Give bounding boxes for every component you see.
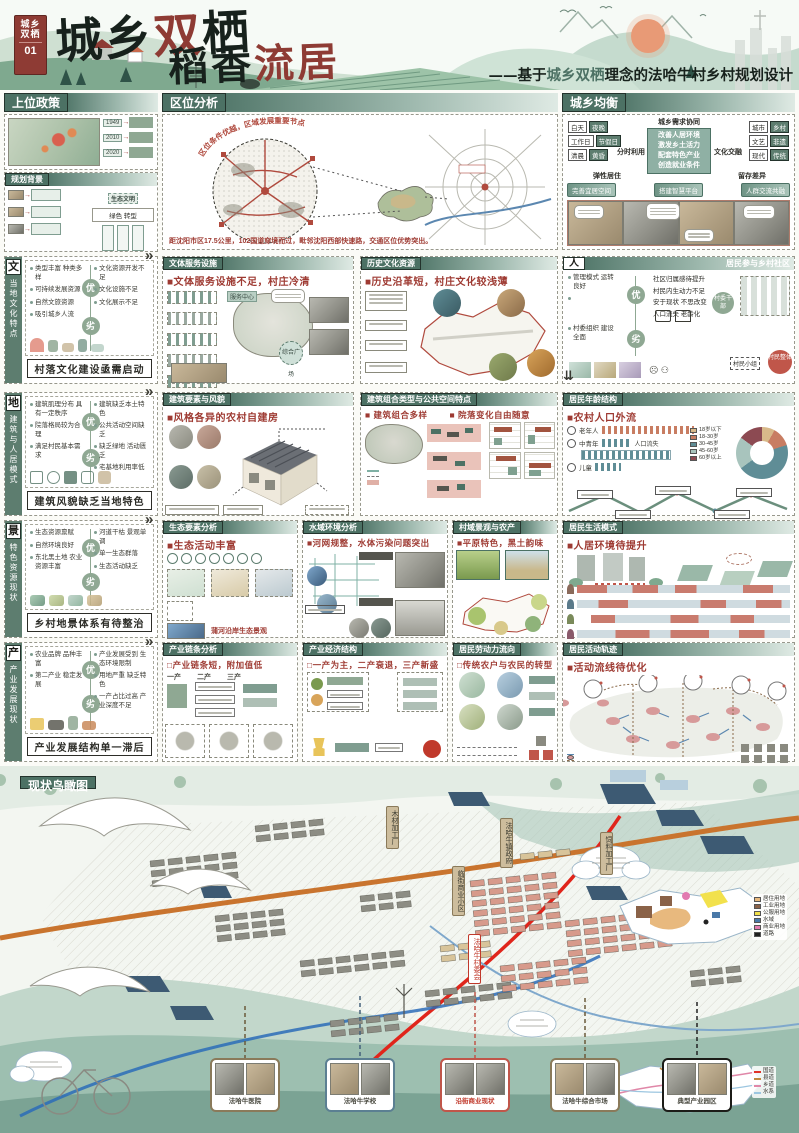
policy-year-1: 1949 bbox=[103, 119, 122, 127]
chain-label-2: 二产 bbox=[197, 672, 211, 682]
aerial-tag-1: 木材加工厂 bbox=[386, 806, 399, 849]
arch-house-drawing bbox=[229, 425, 329, 513]
industry-icons bbox=[30, 714, 149, 730]
industry-cons: 产业发展受到 生态环境限制用地严重 缺乏特色一产占比过高 产业深度不足 bbox=[94, 651, 150, 714]
eco-title: 生态要素分析 bbox=[163, 521, 223, 534]
badge-line2: 双栖 bbox=[15, 29, 46, 39]
facility-note2: 综合广场 bbox=[279, 341, 303, 365]
chain-title: 产业链条分析 bbox=[163, 643, 223, 656]
chain-label-1: 一产 bbox=[167, 672, 181, 682]
poster-header: 城乡 双栖 01 城乡双栖 稻香流居 ——基于城乡双栖理念的法哈牛村乡村规划设计 bbox=[0, 0, 799, 90]
track-headline: ■活动流线待优化 bbox=[563, 656, 794, 675]
track-title: 居民活动轨迹 bbox=[563, 643, 623, 656]
policy-title: 上位政策 bbox=[4, 93, 68, 112]
panel-people: 人 居民参与乡村社区 管理模式 运转良好村委组织 建设全面 优 劣 社区归属感待… bbox=[562, 256, 795, 384]
panel-policy: 上位政策 1949→ 2010→ 2020→ bbox=[4, 93, 158, 170]
panel-track: 居民活动轨迹 ■活动流线待优化 bbox=[562, 642, 795, 762]
economy-headline: □一产为主，二产衰退，三产新盛 bbox=[303, 656, 447, 672]
eco-headline: ■生态活动丰富 bbox=[163, 534, 297, 553]
panel-economy: 产业经济结构 □一产为主，二产衰退，三产新盛 bbox=[302, 642, 448, 762]
location-maps: 区位条件优越，区域发展重要节点 bbox=[163, 115, 557, 249]
facility-headline: ■文体服务设施不足，村庄冷清 bbox=[163, 270, 353, 289]
tab-char-culture: 文 bbox=[6, 259, 21, 275]
arch-combo-title: 建筑组合类型与公共空间特点 bbox=[361, 393, 477, 406]
life-schedule bbox=[567, 584, 790, 639]
panel-life: 居民生活模式 ■人居环境待提升 bbox=[562, 520, 795, 638]
eco-note: 绿色 转型 bbox=[92, 208, 154, 222]
age-title: 居民年龄结构 bbox=[563, 393, 623, 406]
policy-year-2: 2010 bbox=[103, 134, 122, 142]
land-pros: 生态资源禀赋自然环境良好东北黑土地 农业资源丰富 bbox=[30, 529, 86, 575]
eco-label: 生态文明 bbox=[108, 193, 138, 204]
main-title-line2: 稻香流居 bbox=[167, 29, 341, 93]
panel-village-view: 村域景观与农产 ■平原特色，黑土韵味 bbox=[452, 520, 558, 638]
panel-background: 规划背景 → → → 生态文明 绿色 转型 bbox=[4, 172, 158, 252]
panel-water: 水域环境分析 ■河网规整，水体污染问题突出 bbox=[302, 520, 448, 638]
industry-banner: 产业发展结构单一滞后 bbox=[27, 737, 152, 756]
history-title: 历史文化资源 bbox=[361, 257, 421, 270]
age-group-3: 儿童 bbox=[579, 462, 592, 472]
facility-note1: 服务中心 bbox=[227, 291, 257, 302]
policy-year-3: 2020 bbox=[103, 149, 122, 157]
aerial-title: 现状鸟瞰图 bbox=[20, 776, 96, 789]
balance-title: 城乡均衡 bbox=[562, 93, 626, 112]
balance-right-pairs: 城市乡村 文艺非遗 现代传统 bbox=[749, 121, 789, 163]
panel-location: 区位分析 区位条件优越，区域发展重要节点 bbox=[162, 93, 558, 250]
arch-pros: 建筑肌理分布 具有一定秩序院落格局较为合理满足村民基本需求 bbox=[30, 401, 86, 464]
people-node-3: 村民整体 bbox=[768, 350, 792, 374]
panel-arch-combo: 建筑组合类型与公共空间特点 ■ 建筑组合多样 ■ 院落变化自由随意 bbox=[360, 392, 558, 516]
age-group-2: 中青年 bbox=[579, 438, 599, 448]
poster: 城乡 双栖 01 城乡双栖 稻香流居 ——基于城乡双栖理念的法哈牛村乡村规划设计… bbox=[0, 0, 799, 1133]
panel-arch-style: 建筑要素与风貌 ■风格各异的农村自建房 bbox=[162, 392, 354, 516]
arch-combo-headline2: ■ 院落变化自由随意 bbox=[446, 406, 535, 422]
culture-icons bbox=[30, 336, 149, 352]
panel-history: 历史文化资源 ■历史沿革短，村庄文化较浅薄 bbox=[360, 256, 558, 384]
arrow-more-2: » bbox=[145, 383, 150, 400]
photo-card-2: 法哈牛学校 bbox=[325, 1058, 395, 1112]
panel-chain: 产业链条分析 □产业链条短，附加值低 一产 二产 三产 bbox=[162, 642, 298, 762]
arch-style-title: 建筑要素与风貌 bbox=[163, 393, 231, 406]
panel-land-tab: 景特色资源现状 生态资源禀赋自然环境良好东北黑土地 农业资源丰富 优劣 河道干枯… bbox=[4, 520, 158, 638]
land-icons bbox=[30, 590, 149, 606]
combo-map bbox=[365, 424, 423, 464]
location-title: 区位分析 bbox=[162, 93, 226, 112]
age-donut-legend: 18岁以下 18-30岁 30-45岁 45-60岁 60岁以上 bbox=[690, 427, 730, 462]
arch-icons bbox=[30, 468, 149, 484]
panel-industry-tab: 产产业发展现状 农业品牌 品种丰富第二产业 稳定发展 优劣 产业发展受到 生态环… bbox=[4, 642, 158, 762]
land-banner: 乡村地景体系有待整治 bbox=[27, 613, 152, 632]
chain-headline: □产业链条短，附加值低 bbox=[163, 656, 297, 672]
village-view-headline: ■平原特色，黑土韵味 bbox=[453, 534, 557, 550]
badge-line1: 城乡 bbox=[15, 19, 46, 29]
chain-label-3: 三产 bbox=[227, 672, 241, 682]
people-pros: 管理模式 运转良好村委组织 建设全面 bbox=[568, 274, 620, 346]
balance-center-box: 改善人居环境激发乡土活力配套特色产业创造就业条件 bbox=[647, 128, 711, 174]
balance-left-label: 分时利用 bbox=[617, 147, 645, 157]
age-headline: ■农村人口外流 bbox=[563, 406, 794, 425]
water-headline: ■河网规整，水体污染问题突出 bbox=[303, 534, 447, 550]
policy-map bbox=[8, 118, 100, 166]
arch-combo-headline1: ■ 建筑组合多样 bbox=[361, 406, 432, 422]
people-char: 人 bbox=[563, 257, 585, 270]
people-node-2: 村民小组 bbox=[730, 357, 760, 370]
culture-banner: 村落文化建设亟需启动 bbox=[27, 359, 152, 378]
badge-number: 01 bbox=[19, 42, 42, 57]
track-legend bbox=[567, 754, 576, 761]
panel-balance: 城乡均衡 白天夜晚 工作日节假日 清晨黄昏 城市乡村 文艺非遗 现代传统 城乡需… bbox=[562, 93, 795, 250]
arch-banner: 建筑风貌缺乏当地特色 bbox=[27, 491, 152, 510]
arrow-down: ⇊ bbox=[563, 368, 574, 384]
background-title: 规划背景 bbox=[5, 173, 49, 186]
arrow-more-1: » bbox=[145, 247, 150, 264]
balance-right-sub: 留存差异 bbox=[738, 171, 766, 181]
tab-char-land: 景 bbox=[6, 523, 21, 539]
aerial-view: 现状鸟瞰图 木材加工厂 法哈牛镇政府 饲料加工厂 临街商业小区 法哈牛村委会 居… bbox=[0, 766, 799, 1133]
photo-card-5: 典型产业园区 bbox=[662, 1058, 732, 1112]
panel-facility: 文体服务设施 ■文体服务设施不足，村庄冷清 服务中心 综合广场 bbox=[162, 256, 354, 384]
water-title: 水域环境分析 bbox=[303, 521, 363, 534]
panel-culture-tab: 文当地文化特点 类型丰富 种类多样可持续发展资源自然文旅资源吸引城乡人流 优劣 … bbox=[4, 256, 158, 384]
panel-arch-tab: 地建筑与人居模式 建筑肌理分布 具有一定秩序院落格局较为合理满足村民基本需求 优… bbox=[4, 392, 158, 516]
land-cons: 河道干枯 景观单调单一生态群落生态活动缺乏 bbox=[94, 529, 150, 575]
arrow-more-3: » bbox=[145, 511, 150, 528]
tab-char-arch: 地 bbox=[6, 395, 21, 411]
balance-right-label: 文化交融 bbox=[714, 147, 742, 157]
facility-title: 文体服务设施 bbox=[163, 257, 223, 270]
eco-caption: 蒲河沿岸生态景观 bbox=[211, 626, 267, 636]
tab-label-land: 特色资源现状 bbox=[8, 543, 19, 603]
photo-card-4: 法哈牛综合市场 bbox=[550, 1058, 620, 1112]
life-headline: ■人居环境待提升 bbox=[563, 534, 794, 553]
village-outline-map bbox=[455, 586, 555, 638]
age-group-1: 老年人 bbox=[579, 425, 599, 435]
history-headline: ■历史沿革短，村庄文化较浅薄 bbox=[361, 270, 557, 289]
life-title: 居民生活模式 bbox=[563, 521, 623, 534]
landuse-legend: 居住用地 工业用地 公服用地 水域 商业用地 道路 bbox=[752, 894, 787, 940]
balance-photo-strip bbox=[567, 200, 790, 246]
arrow-more-4: » bbox=[145, 633, 150, 650]
village-view-title: 村域景观与农产 bbox=[453, 521, 521, 534]
poster-subtitle: ——基于城乡双栖理念的法哈牛村乡村规划设计 bbox=[489, 64, 794, 85]
balance-pills: 完善宜居空间搭建智慧平台人群交流共融 bbox=[567, 183, 790, 197]
age-loss-label: 人口流失 bbox=[635, 439, 659, 448]
photo-card-3: 沿街商业现状 bbox=[440, 1058, 510, 1112]
balance-center-title: 城乡需求协同 bbox=[647, 117, 711, 127]
tab-char-industry: 产 bbox=[6, 645, 21, 661]
industry-pros: 农业品牌 品种丰富第二产业 稳定发展 bbox=[30, 651, 86, 693]
panel-age: 居民年龄结构 ■农村人口外流 老年人 中青年人口流失 儿童 18岁以下 18-3… bbox=[562, 392, 795, 516]
series-badge: 城乡 双栖 01 bbox=[14, 15, 47, 75]
balance-left-sub: 弹性居住 bbox=[593, 171, 621, 181]
aerial-tag-4: 临街商业小区 bbox=[452, 866, 465, 916]
panel-eco: 生态要素分析 ■生态活动丰富 蒲河沿岸生态景观 bbox=[162, 520, 298, 638]
tab-label-culture: 当地文化特点 bbox=[8, 279, 19, 339]
photo-card-1: 法哈牛医院 bbox=[210, 1058, 280, 1112]
culture-cons: 文化资源开发不足文化设施不足文化展示不足 bbox=[94, 265, 150, 311]
aerial-tag-5: 法哈牛村委会 bbox=[468, 934, 481, 984]
tab-label-arch: 建筑与人居模式 bbox=[8, 415, 19, 485]
culture-pros: 类型丰富 种类多样可持续发展资源自然文旅资源吸引城乡人流 bbox=[30, 265, 86, 324]
people-title: 居民参与乡村社区 bbox=[726, 258, 790, 269]
balance-left-pairs: 白天夜晚 工作日节假日 清晨黄昏 bbox=[568, 121, 621, 163]
people-node-1: 村委干部 bbox=[712, 292, 734, 314]
tab-label-industry: 产业发展现状 bbox=[8, 665, 19, 725]
aerial-tag-2: 法哈牛镇政府 bbox=[500, 818, 513, 868]
panel-labor: 居民劳动力流向 □传统农户与农民的转型 bbox=[452, 642, 558, 762]
road-legend: 国道 县道 乡道 水系 bbox=[752, 1066, 776, 1098]
aerial-tag-3: 饲料加工厂 bbox=[600, 832, 613, 875]
location-caption: 距沈阳市区17.5公里，102国道穿境而过，毗邻沈阳西部快速路，交通区位优势突出… bbox=[169, 236, 432, 246]
arch-cons: 建筑缺乏本土特色公共活动空间缺乏缺乏绿地 活动匮乏宅基地利用率低 bbox=[94, 401, 150, 477]
labor-headline: □传统农户与农民的转型 bbox=[453, 656, 557, 672]
economy-title: 产业经济结构 bbox=[303, 643, 363, 656]
labor-title: 居民劳动力流向 bbox=[453, 643, 521, 656]
arch-style-headline: ■风格各异的农村自建房 bbox=[163, 406, 353, 425]
con-circle: 劣 bbox=[82, 317, 100, 335]
